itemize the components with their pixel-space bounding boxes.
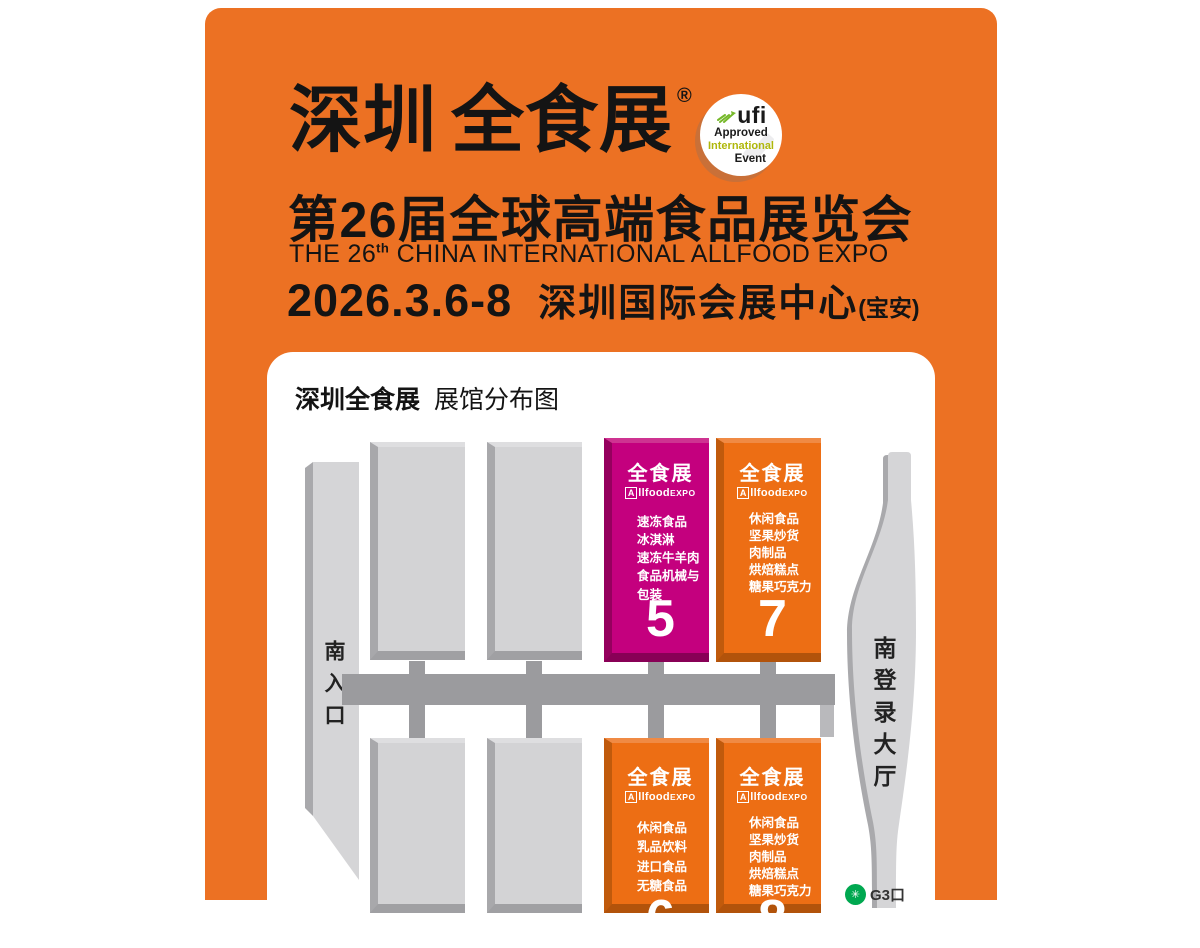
- category-item: 冰淇淋: [637, 531, 703, 549]
- category-item: 肉制品: [749, 545, 815, 562]
- hall-5: 全食展 AllfoodEXPO 速冻食品 冰淇淋 速冻牛羊肉 食品机械与包装 5: [604, 438, 709, 662]
- allfood-expo-logo: 全食展 AllfoodEXPO: [724, 767, 821, 803]
- category-item: 乳品饮料: [637, 838, 703, 857]
- hall-8: 全食展 AllfoodEXPO 休闲食品 坚果炒货 肉制品 烘焙糕点 糖果巧克力…: [716, 738, 821, 913]
- brand-expo: EXPO: [782, 489, 808, 498]
- brand-cn: 全食展: [612, 767, 709, 789]
- category-item: 休闲食品: [749, 815, 815, 832]
- brand-expo: EXPO: [670, 489, 696, 498]
- brand-a-box: A: [737, 791, 749, 803]
- ufi-approved-badge: ufi Approved International Event: [700, 94, 782, 176]
- category-item: 坚果炒货: [749, 528, 815, 545]
- corridor-connector: [760, 661, 776, 675]
- metro-icon: ✳: [845, 884, 866, 905]
- main-title-part2: 全食展: [451, 80, 673, 161]
- corridor-connector: [820, 705, 834, 737]
- metro-exit-label: G3口: [870, 884, 905, 905]
- brand-a-box: A: [737, 487, 749, 499]
- category-item: 休闲食品: [749, 511, 815, 528]
- subtitle-en-ordinal: th: [376, 241, 389, 256]
- hall-5-number: 5: [612, 593, 709, 645]
- poster-root: { "header": { "title_part1": "深圳", "titl…: [0, 0, 1200, 900]
- ufi-approved-text: Approved: [714, 127, 768, 140]
- corridor-connector: [526, 705, 542, 738]
- event-venue: 深圳国际会展中心: [538, 272, 858, 327]
- category-item: 进口食品: [637, 858, 703, 877]
- ufi-event-text: Event: [735, 153, 766, 166]
- brand-cn: 全食展: [724, 463, 821, 485]
- brand-cn: 全食展: [612, 463, 709, 485]
- brand-mid: llfood: [750, 792, 782, 803]
- ufi-international-text: International: [708, 140, 774, 153]
- brand-a-box: A: [625, 791, 637, 803]
- hall-7-categories: 休闲食品 坚果炒货 肉制品 烘焙糕点 糖果巧克力: [724, 511, 821, 595]
- orange-background-panel: 深圳全食展 ® ufi Approved International Event…: [205, 8, 997, 900]
- corridor-connector: [409, 705, 425, 738]
- hall-7: 全食展 AllfoodEXPO 休闲食品 坚果炒货 肉制品 烘焙糕点 糖果巧克力…: [716, 438, 821, 662]
- corridor-connector: [648, 705, 664, 738]
- hall-7-number: 7: [724, 593, 821, 645]
- brand-mid: llfood: [638, 488, 670, 499]
- hall-8-categories: 休闲食品 坚果炒货 肉制品 烘焙糕点 糖果巧克力: [724, 815, 821, 899]
- allfood-expo-logo: 全食展 AllfoodEXPO: [612, 767, 709, 803]
- main-title-cn: 深圳全食展: [289, 84, 673, 157]
- hall-gray-top-2: [487, 442, 582, 660]
- ufi-swoosh-icon: [715, 107, 737, 123]
- brand-en: AllfoodEXPO: [612, 487, 709, 499]
- category-item: 烘焙糕点: [749, 866, 815, 883]
- central-corridor: [342, 674, 835, 705]
- category-item: 肉制品: [749, 849, 815, 866]
- brand-a-box: A: [625, 487, 637, 499]
- brand-mid: llfood: [750, 488, 782, 499]
- main-title: 深圳全食展 ®: [289, 84, 692, 157]
- brand-cn: 全食展: [724, 767, 821, 789]
- allfood-expo-logo: 全食展 AllfoodEXPO: [612, 463, 709, 499]
- registered-trademark-symbol: ®: [677, 86, 692, 106]
- event-venue-district: (宝安): [858, 289, 919, 323]
- metro-exit-marker: ✳ G3口: [845, 884, 905, 905]
- corridor-connector: [409, 661, 425, 675]
- date-venue-row: 2026.3.6-8 深圳国际会展中心 (宝安): [287, 272, 920, 327]
- hall-6-number: 6: [612, 893, 709, 945]
- brand-en: AllfoodEXPO: [724, 487, 821, 499]
- brand-expo: EXPO: [670, 793, 696, 802]
- category-item: 烘焙糕点: [749, 562, 815, 579]
- hall-gray-bottom-1: [370, 738, 465, 913]
- hall-8-number: 8: [724, 893, 821, 945]
- hall-gray-bottom-2: [487, 738, 582, 913]
- hall-gray-top-1: [370, 442, 465, 660]
- venue-map-card: 深圳全食展展馆分布图 南入口 全: [267, 352, 935, 908]
- hall-distribution-map: 南入口 全食展 AllfoodEXPO 速冻食品: [267, 352, 935, 908]
- brand-expo: EXPO: [782, 793, 808, 802]
- brand-en: AllfoodEXPO: [724, 791, 821, 803]
- corridor-connector: [526, 661, 542, 675]
- south-login-hall-label: 南登录大厅: [866, 636, 900, 796]
- hall-6: 全食展 AllfoodEXPO 休闲食品 乳品饮料 进口食品 无糖食品 6: [604, 738, 709, 913]
- hall-6-categories: 休闲食品 乳品饮料 进口食品 无糖食品: [612, 819, 709, 897]
- category-item: 休闲食品: [637, 819, 703, 838]
- subtitle-en-pre: THE 26: [289, 240, 376, 268]
- subtitle-english: THE 26th CHINA INTERNATIONAL ALLFOOD EXP…: [289, 240, 889, 269]
- main-title-part1: 深圳: [289, 80, 437, 161]
- corridor-connector: [760, 705, 776, 738]
- event-date: 2026.3.6-8: [287, 275, 512, 327]
- category-item: 速冻食品: [637, 513, 703, 531]
- brand-mid: llfood: [638, 792, 670, 803]
- subtitle-en-post: CHINA INTERNATIONAL ALLFOOD EXPO: [389, 240, 888, 268]
- brand-en: AllfoodEXPO: [612, 791, 709, 803]
- category-item: 速冻牛羊肉: [637, 549, 703, 567]
- ufi-logo-row: ufi: [715, 104, 767, 127]
- ufi-wordmark: ufi: [737, 104, 767, 127]
- corridor-connector: [648, 661, 664, 675]
- allfood-expo-logo: 全食展 AllfoodEXPO: [724, 463, 821, 499]
- category-item: 坚果炒货: [749, 832, 815, 849]
